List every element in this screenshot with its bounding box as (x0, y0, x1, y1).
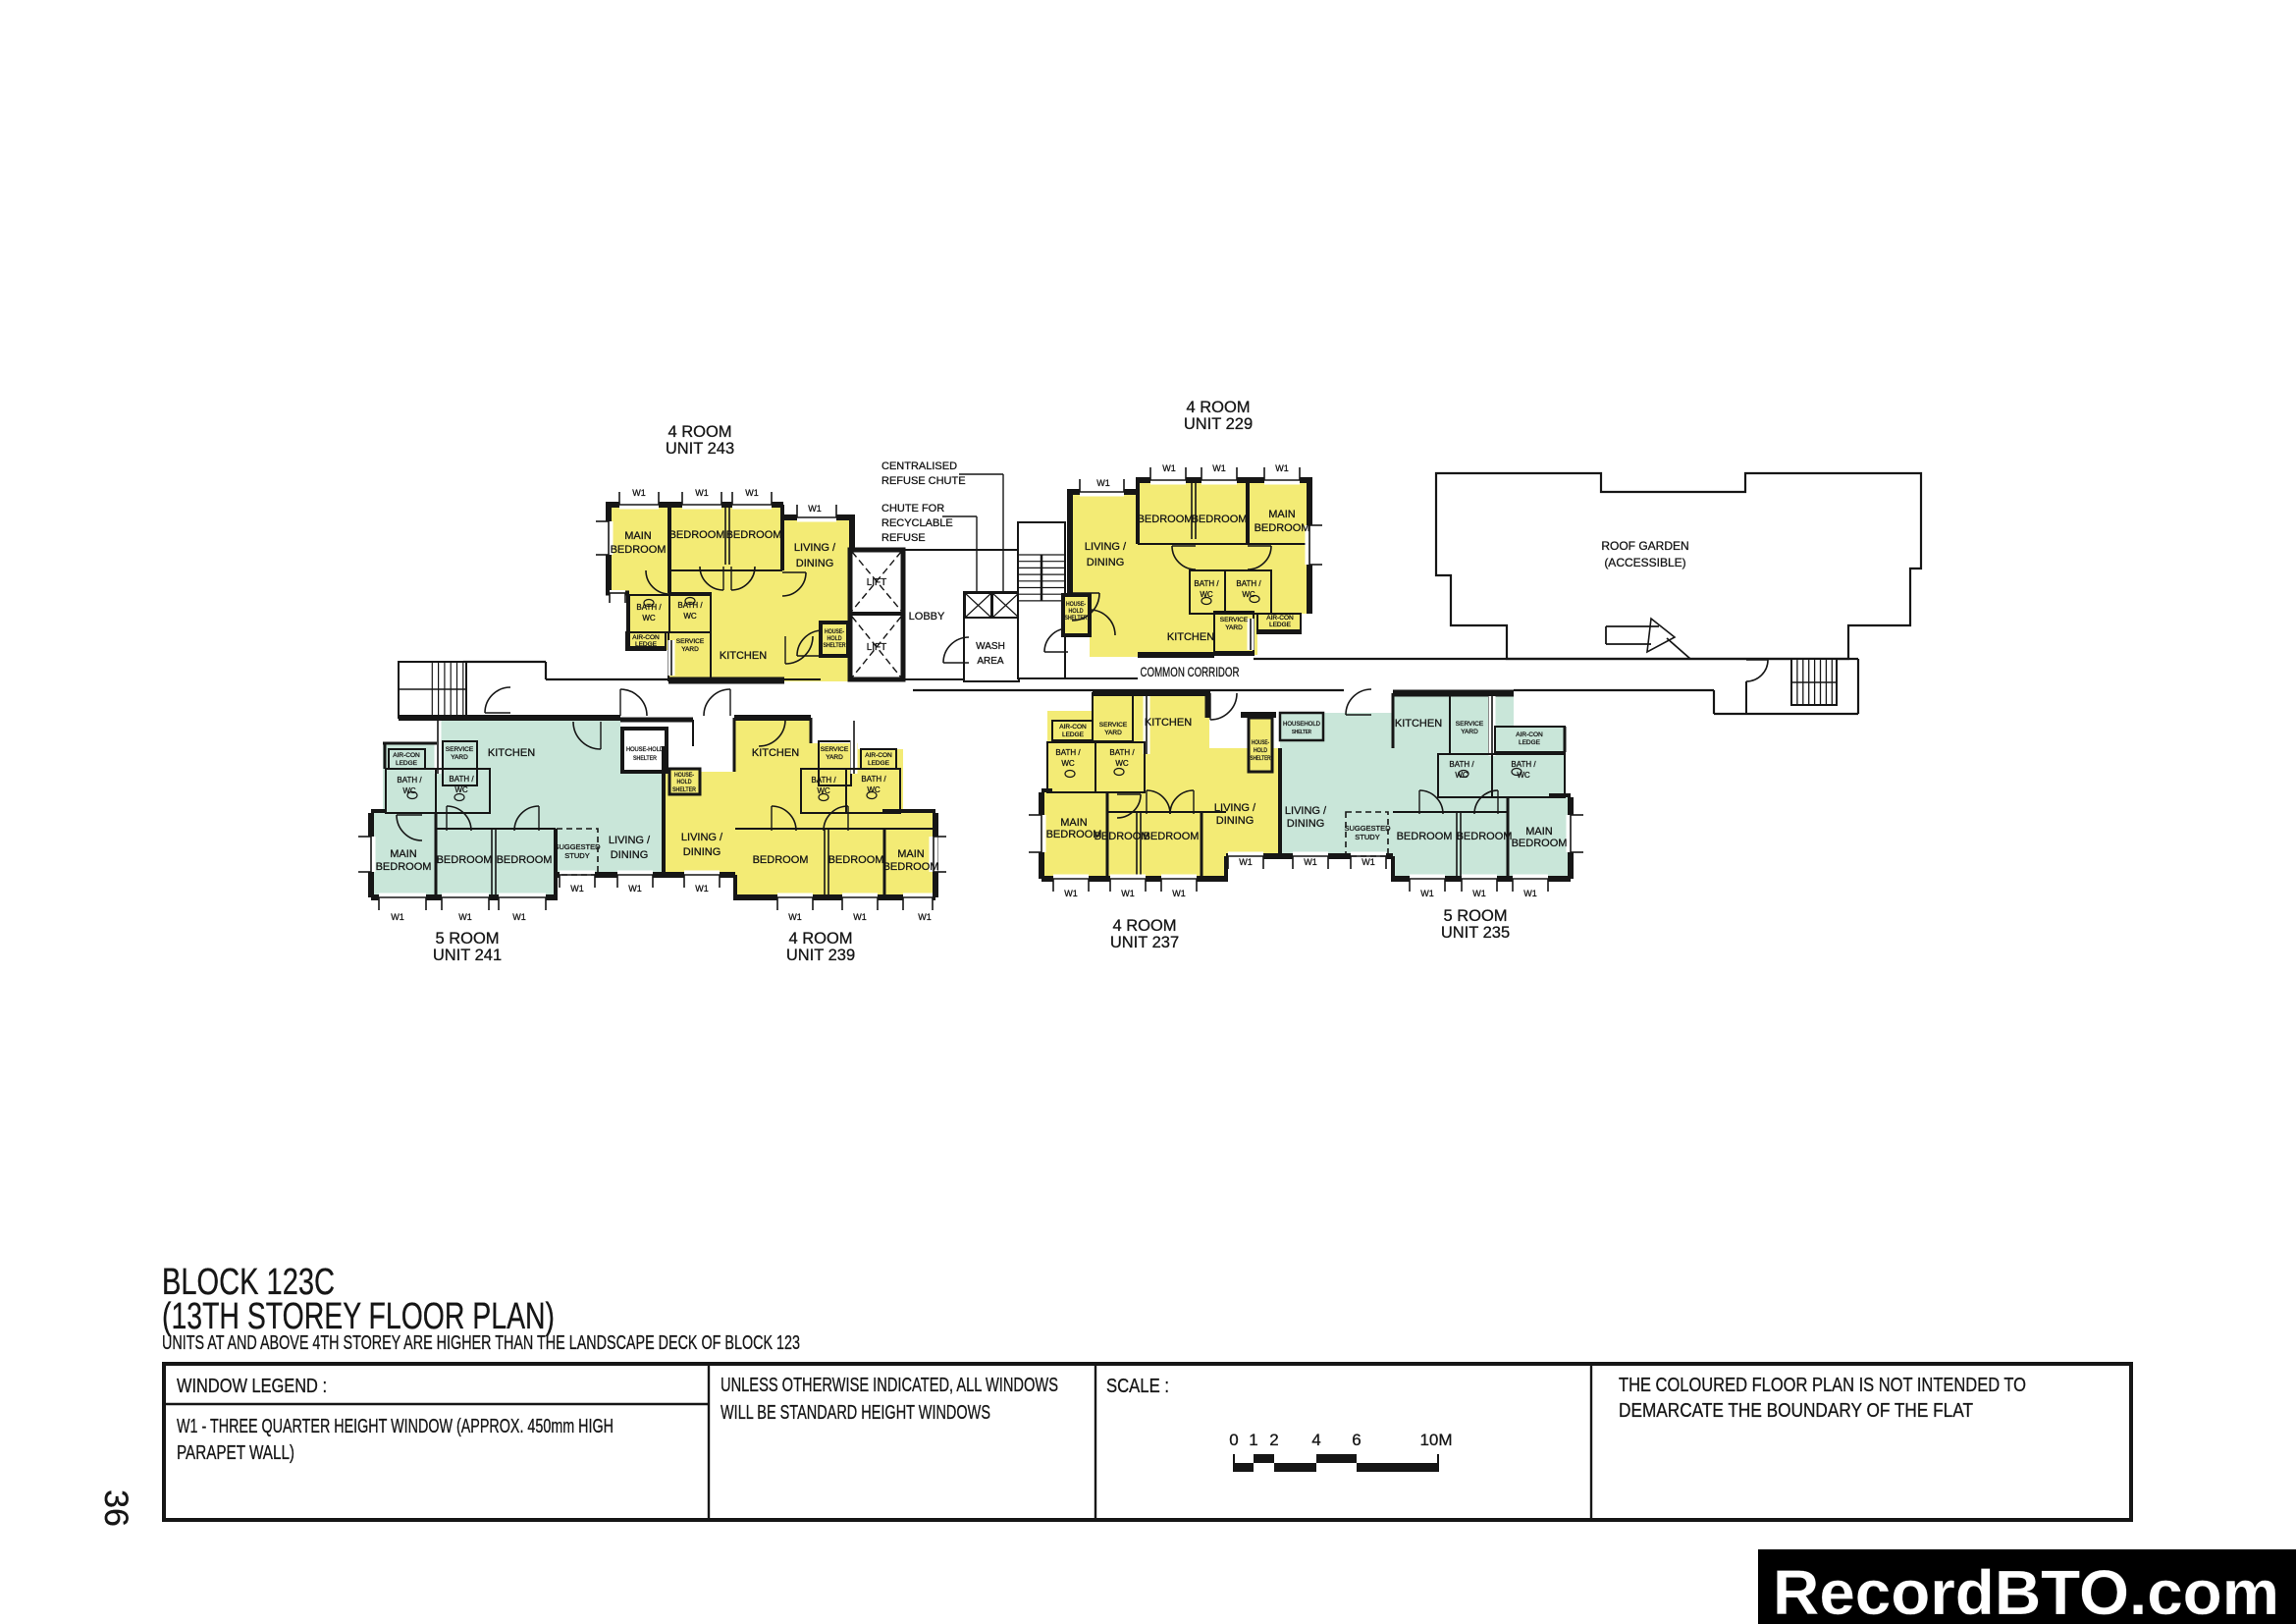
svg-text:DINING: DINING (796, 558, 834, 569)
svg-text:HOLD: HOLD (677, 780, 693, 785)
svg-text:DINING: DINING (1287, 818, 1325, 830)
svg-text:BATH /: BATH / (636, 603, 662, 612)
svg-text:BATH /: BATH / (449, 775, 474, 784)
svg-text:UNIT 239: UNIT 239 (786, 947, 855, 964)
svg-text:W1: W1 (808, 504, 822, 514)
svg-text:BATH /: BATH / (1511, 760, 1536, 769)
svg-text:W1: W1 (391, 912, 404, 922)
svg-text:YARD: YARD (681, 646, 699, 653)
svg-text:DINING: DINING (1216, 815, 1255, 827)
svg-text:4: 4 (1311, 1431, 1320, 1449)
svg-text:YARD: YARD (826, 754, 843, 761)
svg-text:BEDROOM: BEDROOM (726, 529, 782, 541)
svg-text:LIVING /: LIVING / (681, 832, 723, 843)
svg-text:CENTRALISED: CENTRALISED (881, 460, 957, 472)
svg-text:UNIT 243: UNIT 243 (666, 440, 734, 458)
svg-text:WINDOW LEGEND :: WINDOW LEGEND : (177, 1376, 327, 1397)
svg-text:CHUTE FOR: CHUTE FOR (881, 503, 944, 514)
svg-text:W1: W1 (1172, 889, 1186, 898)
svg-text:SERVICE: SERVICE (1099, 722, 1128, 729)
svg-text:LEDGE: LEDGE (396, 760, 418, 767)
svg-text:WC: WC (402, 786, 416, 795)
svg-text:BATH /: BATH / (397, 776, 422, 785)
svg-text:4 ROOM: 4 ROOM (667, 423, 731, 441)
svg-text:BATH /: BATH / (1236, 579, 1261, 588)
svg-text:RECYCLABLE: RECYCLABLE (881, 517, 953, 529)
svg-text:W1: W1 (1362, 857, 1375, 867)
svg-text:WC: WC (1200, 590, 1213, 599)
svg-text:SERVICE: SERVICE (821, 746, 849, 753)
svg-text:(13TH STOREY FLOOR PLAN): (13TH STOREY FLOOR PLAN) (162, 1296, 555, 1337)
svg-text:UNIT 241: UNIT 241 (433, 947, 502, 964)
svg-text:WC: WC (1115, 759, 1129, 768)
svg-text:4 ROOM: 4 ROOM (788, 930, 852, 947)
svg-text:W1: W1 (853, 912, 867, 922)
svg-text:WC: WC (867, 785, 881, 794)
svg-text:WASH: WASH (976, 641, 1005, 652)
svg-text:LIFT: LIFT (867, 642, 887, 653)
svg-text:AIR-CON: AIR-CON (865, 752, 892, 759)
svg-text:BATH /: BATH / (811, 776, 836, 785)
svg-text:MAIN: MAIN (897, 848, 925, 860)
svg-text:6: 6 (1352, 1431, 1361, 1449)
svg-text:W1: W1 (1523, 889, 1537, 898)
svg-text:UNITS AT AND ABOVE 4TH STOREY: UNITS AT AND ABOVE 4TH STOREY ARE HIGHER… (162, 1332, 800, 1354)
svg-text:W1: W1 (1472, 889, 1486, 898)
svg-text:DEMARCATE THE BOUNDARY OF THE: DEMARCATE THE BOUNDARY OF THE FLAT (1619, 1400, 1973, 1422)
svg-text:BEDROOM: BEDROOM (1192, 514, 1248, 525)
svg-text:RecordBTO.com: RecordBTO.com (1773, 1557, 2279, 1624)
svg-text:WC: WC (1242, 590, 1255, 599)
svg-text:4 ROOM: 4 ROOM (1186, 399, 1250, 416)
svg-text:BATH /: BATH / (1109, 748, 1135, 757)
svg-text:YARD: YARD (1461, 729, 1478, 735)
svg-text:W1: W1 (1212, 463, 1226, 473)
svg-text:SHELTER: SHELTER (633, 756, 658, 762)
svg-text:BEDROOM: BEDROOM (1397, 831, 1453, 842)
svg-text:W1: W1 (1275, 463, 1289, 473)
svg-text:BEDROOM: BEDROOM (376, 861, 432, 873)
svg-text:W1: W1 (695, 488, 709, 498)
svg-text:BEDROOM: BEDROOM (1144, 831, 1200, 842)
svg-text:UNIT 229: UNIT 229 (1184, 415, 1253, 433)
svg-text:LEDGE: LEDGE (1519, 739, 1541, 746)
svg-text:W1: W1 (570, 884, 584, 893)
svg-text:MAIN: MAIN (390, 848, 417, 860)
svg-text:W1: W1 (1420, 889, 1434, 898)
svg-text:AIR-CON: AIR-CON (393, 752, 420, 759)
svg-text:HOUSE-: HOUSE- (674, 773, 694, 779)
svg-text:LEDGE: LEDGE (1062, 731, 1085, 738)
svg-text:THE COLOURED FLOOR PLAN IS NOT: THE COLOURED FLOOR PLAN IS NOT INTENDED … (1619, 1375, 2026, 1396)
svg-text:LEDGE: LEDGE (1269, 622, 1292, 628)
svg-text:LIVING /: LIVING / (1214, 802, 1256, 814)
svg-text:SERVICE: SERVICE (676, 638, 705, 645)
svg-text:BEDROOM: BEDROOM (611, 544, 667, 556)
svg-text:BATH /: BATH / (1449, 760, 1474, 769)
svg-text:BEDROOM: BEDROOM (828, 854, 884, 866)
svg-text:COMMON CORRIDOR: COMMON CORRIDOR (1141, 664, 1240, 679)
svg-text:W1: W1 (632, 488, 646, 498)
svg-text:W1 - THREE QUARTER HEIGHT WIND: W1 - THREE QUARTER HEIGHT WINDOW (APPROX… (177, 1416, 614, 1437)
svg-text:HOUSE-HOLD: HOUSE-HOLD (626, 747, 665, 753)
svg-text:ROOF GARDEN: ROOF GARDEN (1601, 539, 1688, 553)
svg-text:W1: W1 (458, 912, 472, 922)
svg-text:4 ROOM: 4 ROOM (1112, 917, 1176, 935)
svg-text:KITCHEN: KITCHEN (752, 747, 799, 759)
svg-text:W1: W1 (1064, 889, 1078, 898)
svg-text:AIR-CON: AIR-CON (1266, 615, 1294, 622)
svg-text:2: 2 (1269, 1431, 1278, 1449)
svg-text:36: 36 (97, 1489, 134, 1527)
svg-text:5 ROOM: 5 ROOM (1443, 907, 1507, 925)
svg-text:LIVING /: LIVING / (1085, 541, 1127, 553)
svg-text:SCALE :: SCALE : (1106, 1376, 1169, 1397)
svg-text:AIR-CON: AIR-CON (1516, 731, 1543, 738)
svg-text:BEDROOM: BEDROOM (497, 854, 553, 866)
svg-text:SHELTER: SHELTER (1292, 730, 1311, 735)
svg-text:SUGGESTED: SUGGESTED (1344, 824, 1391, 833)
svg-text:DINING: DINING (1087, 557, 1125, 568)
svg-text:MAIN: MAIN (624, 530, 652, 542)
svg-text:HOUSEHOLD: HOUSEHOLD (1283, 721, 1320, 728)
svg-text:W1: W1 (1096, 478, 1110, 488)
svg-text:BEDROOM: BEDROOM (1255, 522, 1310, 534)
svg-text:HOUSE-: HOUSE- (1066, 602, 1086, 608)
svg-text:HOLD: HOLD (828, 636, 843, 642)
svg-text:W1: W1 (1162, 463, 1176, 473)
svg-text:LIVING /: LIVING / (794, 542, 836, 554)
svg-text:SUGGESTED: SUGGESTED (554, 842, 601, 851)
svg-text:BEDROOM: BEDROOM (1095, 831, 1150, 842)
svg-text:W1: W1 (1304, 857, 1317, 867)
svg-text:PARAPET WALL): PARAPET WALL) (177, 1442, 294, 1464)
svg-text:W1: W1 (1239, 857, 1253, 867)
svg-text:SHELTER: SHELTER (672, 787, 697, 793)
svg-text:WC: WC (1455, 771, 1468, 780)
svg-text:W1: W1 (918, 912, 932, 922)
svg-text:5 ROOM: 5 ROOM (435, 930, 499, 947)
svg-text:LIVING /: LIVING / (609, 835, 651, 846)
svg-text:LEDGE: LEDGE (635, 641, 658, 648)
svg-text:REFUSE CHUTE: REFUSE CHUTE (881, 475, 966, 487)
svg-text:BEDROOM: BEDROOM (669, 529, 725, 541)
svg-text:HOUSE-: HOUSE- (825, 629, 844, 635)
svg-text:YARD: YARD (1104, 730, 1122, 736)
svg-text:WC: WC (1061, 759, 1075, 768)
svg-text:W1: W1 (745, 488, 759, 498)
svg-text:BEDROOM: BEDROOM (1512, 838, 1568, 849)
svg-text:BEDROOM: BEDROOM (753, 854, 809, 866)
svg-text:KITCHEN: KITCHEN (1395, 718, 1442, 730)
svg-text:AIR-CON: AIR-CON (1059, 724, 1087, 731)
svg-text:BATH /: BATH / (1055, 748, 1081, 757)
svg-text:SHELTER: SHELTER (824, 643, 847, 649)
svg-text:YARD: YARD (1225, 624, 1243, 631)
svg-text:HOUSE-: HOUSE- (1252, 740, 1269, 746)
svg-text:LOBBY: LOBBY (909, 611, 945, 623)
svg-text:MAIN: MAIN (1525, 826, 1553, 838)
svg-text:W1: W1 (1121, 889, 1135, 898)
svg-text:BATH /: BATH / (677, 601, 703, 610)
svg-text:WC: WC (683, 612, 697, 621)
svg-text:SERVICE: SERVICE (1456, 721, 1484, 728)
svg-text:W1: W1 (512, 912, 526, 922)
svg-text:UNIT 235: UNIT 235 (1441, 924, 1510, 942)
svg-text:SHELTER: SHELTER (1065, 616, 1089, 622)
svg-text:WILL BE STANDARD HEIGHT WINDOW: WILL BE STANDARD HEIGHT WINDOWS (721, 1402, 990, 1424)
svg-text:KITCHEN: KITCHEN (720, 650, 767, 662)
svg-text:UNIT 237: UNIT 237 (1110, 934, 1179, 951)
svg-text:REFUSE: REFUSE (881, 532, 926, 544)
svg-text:BEDROOM: BEDROOM (1138, 514, 1194, 525)
svg-text:BEDROOM: BEDROOM (437, 854, 493, 866)
svg-text:LEDGE: LEDGE (868, 760, 890, 767)
svg-text:WC: WC (642, 614, 656, 623)
svg-text:STUDY: STUDY (564, 851, 589, 860)
svg-text:BATH /: BATH / (861, 775, 886, 784)
svg-text:BATH /: BATH / (1194, 579, 1219, 588)
svg-text:LIFT: LIFT (867, 577, 887, 588)
svg-text:LIVING /: LIVING / (1285, 805, 1327, 817)
svg-text:KITCHEN: KITCHEN (1167, 631, 1214, 643)
svg-text:DINING: DINING (683, 846, 721, 858)
svg-text:W1: W1 (628, 884, 642, 893)
svg-text:YARD: YARD (451, 754, 468, 761)
svg-text:BEDROOM: BEDROOM (883, 861, 939, 873)
svg-text:HOLD: HOLD (1069, 609, 1085, 615)
svg-text:0: 0 (1229, 1431, 1238, 1449)
svg-text:(ACCESSIBLE): (ACCESSIBLE) (1604, 556, 1685, 569)
svg-text:KITCHEN: KITCHEN (1145, 717, 1192, 729)
svg-text:10M: 10M (1419, 1431, 1452, 1449)
svg-text:DINING: DINING (611, 849, 649, 861)
svg-text:MAIN: MAIN (1060, 817, 1088, 829)
svg-text:AREA: AREA (977, 656, 1004, 667)
svg-text:1: 1 (1249, 1431, 1257, 1449)
svg-text:SERVICE: SERVICE (446, 746, 474, 753)
svg-text:W1: W1 (788, 912, 802, 922)
svg-text:AIR-CON: AIR-CON (632, 634, 660, 641)
svg-text:BEDROOM: BEDROOM (1457, 831, 1513, 842)
svg-text:MAIN: MAIN (1268, 509, 1296, 520)
svg-text:HOLD: HOLD (1254, 748, 1268, 754)
svg-text:W1: W1 (695, 884, 709, 893)
svg-text:UNLESS OTHERWISE INDICATED, AL: UNLESS OTHERWISE INDICATED, ALL WINDOWS (721, 1375, 1058, 1396)
svg-text:STUDY: STUDY (1355, 833, 1379, 841)
svg-text:SHELTER: SHELTER (1251, 756, 1272, 762)
svg-text:WC: WC (454, 785, 468, 794)
svg-text:KITCHEN: KITCHEN (488, 747, 535, 759)
svg-text:SERVICE: SERVICE (1220, 617, 1249, 623)
